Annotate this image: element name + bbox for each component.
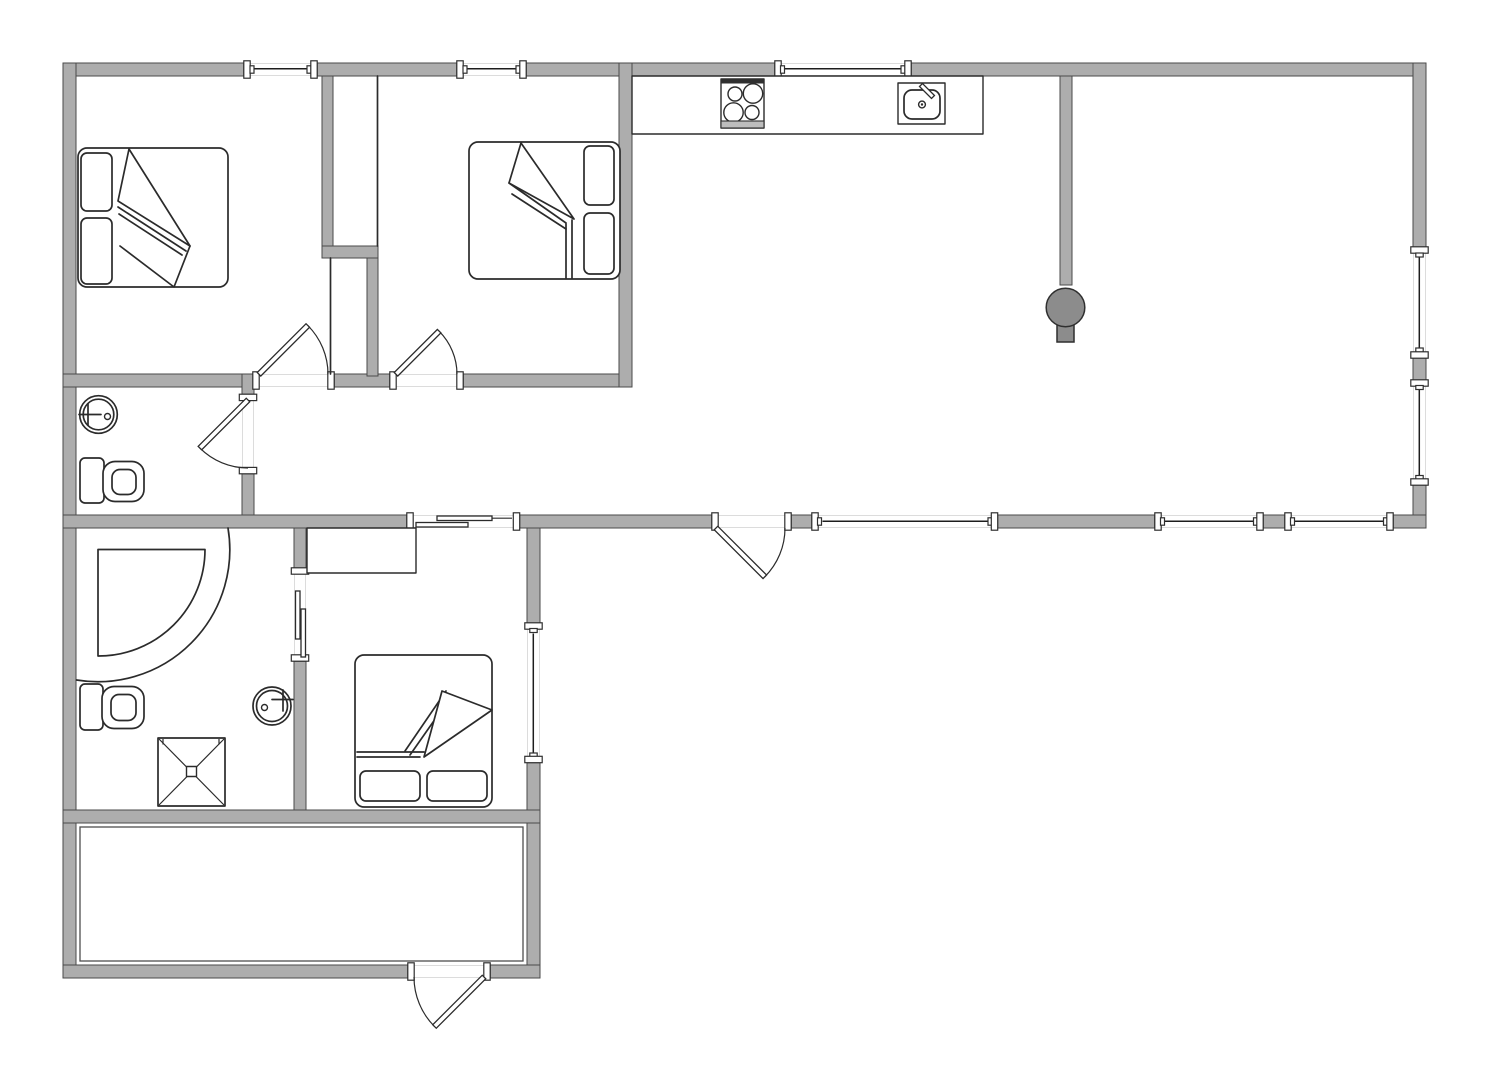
wall-bottom-pier-1 bbox=[791, 515, 812, 528]
wood-stove bbox=[1046, 288, 1085, 342]
sliding-door-bedroom-3 bbox=[416, 516, 512, 527]
kitchen-sink bbox=[898, 83, 945, 124]
wall-bottom-2 bbox=[520, 515, 712, 528]
sliding-door-bathroom-2 bbox=[296, 591, 306, 657]
pillow-icon bbox=[81, 153, 112, 211]
wall-terrace-top bbox=[63, 810, 540, 823]
bed-bedroom-3 bbox=[355, 655, 492, 807]
pillow-icon bbox=[584, 146, 614, 205]
wall-closet-jut bbox=[322, 246, 378, 258]
wall-wing-right-1 bbox=[527, 528, 540, 623]
bed-bedroom-1 bbox=[78, 148, 228, 287]
wall-right-pier bbox=[1413, 358, 1426, 380]
wall-bottom-pier-2 bbox=[1263, 515, 1285, 528]
cooktop bbox=[721, 79, 764, 128]
wall-bathroom1-2 bbox=[242, 474, 254, 515]
terrace-outline bbox=[80, 827, 523, 961]
wall-bedrooms-1 bbox=[63, 374, 253, 387]
entry-door-living bbox=[714, 526, 785, 578]
wall-bottom-corner bbox=[1393, 515, 1426, 528]
wall-bottom-3 bbox=[998, 515, 1155, 528]
wall-closet-b bbox=[367, 258, 378, 376]
wall-bedrooms-3 bbox=[463, 374, 632, 387]
terrace-door bbox=[414, 975, 486, 1028]
washbasin-bathroom-1 bbox=[79, 396, 117, 434]
wall-closet-a bbox=[322, 76, 333, 248]
wall-wing-right-2 bbox=[527, 763, 540, 977]
wall-top-2 bbox=[317, 63, 457, 76]
wall-top-4 bbox=[911, 63, 1426, 76]
wall-right-1 bbox=[1413, 63, 1426, 247]
shower-tray bbox=[158, 738, 225, 806]
door-jambs bbox=[239, 372, 791, 980]
pillow-icon bbox=[427, 771, 487, 801]
toilet-bathroom-1 bbox=[80, 458, 144, 503]
wall-terrace-bottom-1 bbox=[63, 965, 408, 978]
floor-plan-canvas bbox=[0, 0, 1502, 1086]
toilet-bathroom-2 bbox=[80, 684, 144, 730]
corner-shower bbox=[77, 528, 230, 682]
wall-wing-divider-2 bbox=[294, 661, 306, 810]
wall-terrace-bottom-2 bbox=[490, 965, 540, 978]
walls bbox=[63, 63, 1426, 978]
door-bedroom-2 bbox=[394, 329, 457, 376]
wall-bedrooms-2 bbox=[334, 374, 390, 387]
door-bedroom-1 bbox=[257, 324, 328, 376]
pillow-icon bbox=[360, 771, 420, 801]
wall-bedroom2-right bbox=[619, 63, 632, 387]
wall-bottom-1 bbox=[63, 515, 407, 528]
wall-kitchen-stub bbox=[1060, 76, 1072, 285]
pillow-icon bbox=[584, 213, 614, 274]
wall-top-3 bbox=[526, 63, 775, 76]
closet-bedroom-3 bbox=[307, 528, 416, 573]
wall-wing-divider-1 bbox=[294, 528, 306, 568]
bed-bedroom-2 bbox=[469, 142, 620, 279]
washbasin-bathroom-2 bbox=[253, 687, 293, 725]
pillow-icon bbox=[81, 218, 112, 284]
wall-top-1 bbox=[63, 63, 244, 76]
wall-bathroom1-1 bbox=[242, 374, 254, 394]
